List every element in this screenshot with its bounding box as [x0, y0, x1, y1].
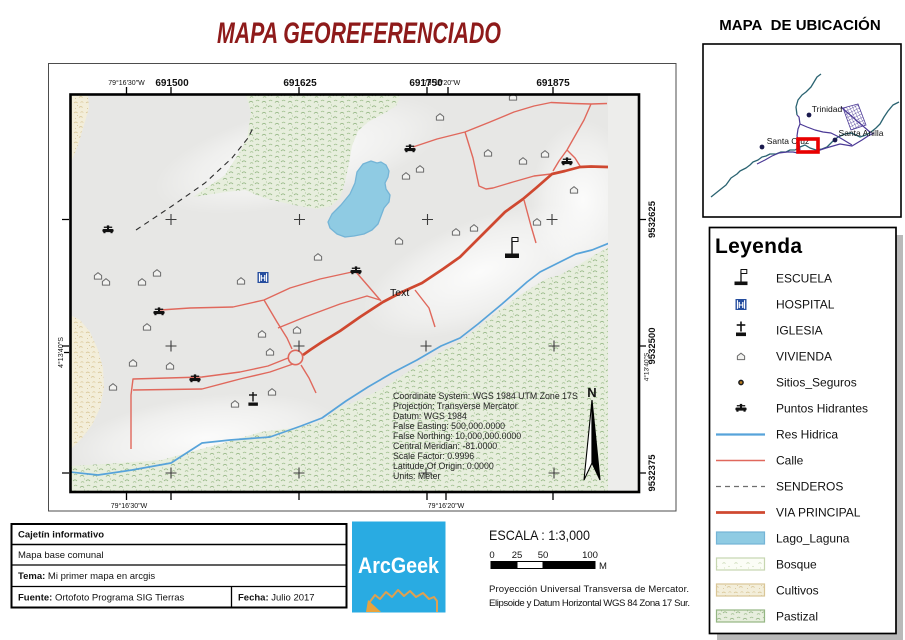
svg-text:Datum: WGS 1984: Datum: WGS 1984: [393, 411, 467, 421]
svg-text:Pastizal: Pastizal: [776, 610, 818, 624]
svg-text:100: 100: [582, 550, 598, 561]
svg-text:79°16'20"W: 79°16'20"W: [428, 502, 465, 510]
svg-text:MAPA DE UBICACIÓN: MAPA DE UBICACIÓN: [719, 16, 880, 34]
svg-text:ESCALA : 1:3,000: ESCALA : 1:3,000: [489, 527, 590, 543]
svg-text:Coordinate System: WGS 1984 UT: Coordinate System: WGS 1984 UTM Zone 17S: [393, 391, 578, 401]
svg-text:M: M: [599, 561, 607, 572]
svg-text:Leyenda: Leyenda: [715, 235, 802, 258]
svg-text:Fuente: Ortofoto Programa SIG: Fuente: Ortofoto Programa SIG Tierras: [18, 593, 185, 604]
svg-text:VIVIENDA: VIVIENDA: [776, 350, 832, 364]
svg-text:79°16'20"W: 79°16'20"W: [424, 79, 461, 87]
svg-text:Cultivos: Cultivos: [776, 584, 819, 598]
svg-text:VIA PRINCIPAL: VIA PRINCIPAL: [776, 506, 861, 520]
svg-text:H: H: [738, 301, 744, 310]
svg-text:691500: 691500: [155, 78, 189, 89]
svg-text:4°13'40"S: 4°13'40"S: [57, 337, 65, 368]
svg-text:Lago_Laguna: Lago_Laguna: [776, 532, 850, 546]
svg-text:9532375: 9532375: [647, 454, 658, 492]
svg-text:Scale Factor: 0.9996: Scale Factor: 0.9996: [393, 451, 474, 461]
svg-text:H: H: [260, 274, 266, 283]
svg-text:Latitude Of Origin: 0.0000: Latitude Of Origin: 0.0000: [393, 461, 494, 471]
svg-text:Sitios_Seguros: Sitios_Seguros: [776, 376, 857, 390]
svg-text:Proyección Universal Transvers: Proyección Universal Transversa de Merca…: [489, 584, 689, 595]
svg-text:ESCUELA: ESCUELA: [776, 272, 832, 286]
svg-text:Fecha: Julio 2017: Fecha: Julio 2017: [238, 593, 315, 604]
svg-text:Santa Anilla: Santa Anilla: [839, 128, 884, 138]
svg-text:MAPA GEOREFERENCIADO: MAPA GEOREFERENCIADO: [217, 17, 501, 50]
svg-text:Bosque: Bosque: [776, 558, 817, 572]
svg-text:Elipsoide y Datum Horizontal W: Elipsoide y Datum Horizontal WGS 84 Zona…: [489, 598, 690, 609]
svg-text:Trinidad: Trinidad: [812, 104, 843, 114]
svg-text:N: N: [587, 385, 596, 400]
svg-text:False Easting: 500,000.0000: False Easting: 500,000.0000: [393, 421, 505, 431]
svg-text:SENDEROS: SENDEROS: [776, 480, 843, 494]
svg-text:ArcGeek: ArcGeek: [358, 553, 439, 578]
svg-text:25: 25: [512, 550, 523, 561]
svg-text:79°16'30"W: 79°16'30"W: [111, 502, 148, 510]
svg-text:Text: Text: [390, 287, 409, 299]
svg-text:Mapa base comunal: Mapa base comunal: [18, 550, 104, 561]
svg-text:4°13'40"S: 4°13'40"S: [643, 352, 651, 381]
svg-text:Central Meridian: -81.0000: Central Meridian: -81.0000: [393, 441, 497, 451]
svg-text:Projection: Transverse Mercato: Projection: Transverse Mercator: [393, 401, 518, 411]
svg-text:691625: 691625: [283, 78, 317, 89]
svg-text:Calle: Calle: [776, 454, 804, 468]
svg-text:False Northing: 10,000,000.000: False Northing: 10,000,000.0000: [393, 431, 521, 441]
svg-text:Cajetín informativo: Cajetín informativo: [18, 530, 104, 541]
svg-text:IGLESIA: IGLESIA: [776, 324, 823, 338]
svg-text:Puntos Hidrantes: Puntos Hidrantes: [776, 402, 868, 416]
svg-text:79°16'30"W: 79°16'30"W: [108, 79, 145, 87]
svg-text:HOSPITAL: HOSPITAL: [776, 298, 835, 312]
svg-text:50: 50: [538, 550, 549, 561]
svg-text:0: 0: [489, 550, 494, 561]
svg-text:Units: Meter: Units: Meter: [393, 471, 440, 481]
svg-text:Tema: Mi primer mapa en arcgis: Tema: Mi primer mapa en arcgis: [18, 571, 155, 582]
svg-text:Res Hidrica: Res Hidrica: [776, 428, 838, 442]
svg-text:9532625: 9532625: [647, 200, 658, 238]
